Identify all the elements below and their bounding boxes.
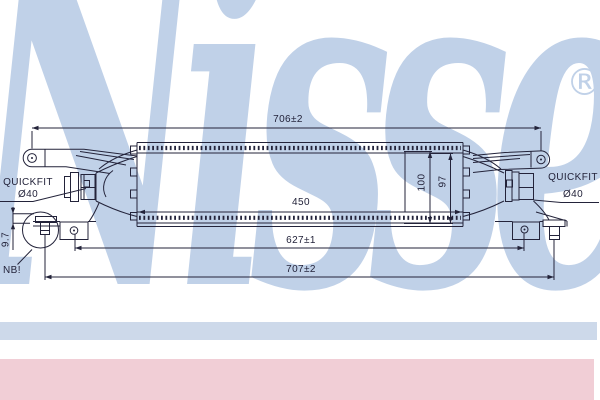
dimension-label-mount-hole-span: 627±1 <box>271 235 331 246</box>
label-layer: 706±2 450 627±1 707±2 100 97 9.7 NB! QUI… <box>0 0 600 400</box>
quickfit-left-label: QUICKFIT <box>2 177 54 188</box>
dimension-label-height-outer: 100 <box>417 166 428 200</box>
quickfit-right-diameter-label: Ø40 <box>546 189 600 200</box>
dimension-label-overall-top: 706±2 <box>258 114 318 125</box>
catalog-drawing-page: Nissens ® <box>0 0 600 400</box>
quickfit-left-diameter-label: Ø40 <box>2 189 54 200</box>
quickfit-right-label: QUICKFIT <box>546 172 600 183</box>
dimension-label-height-core: 97 <box>438 165 449 199</box>
dimension-label-pin-offset: 9.7 <box>1 218 12 262</box>
dimension-label-overall-bottom: 707±2 <box>271 264 331 275</box>
dimension-label-core-length: 450 <box>281 197 321 208</box>
note-label: NB! <box>3 265 21 276</box>
